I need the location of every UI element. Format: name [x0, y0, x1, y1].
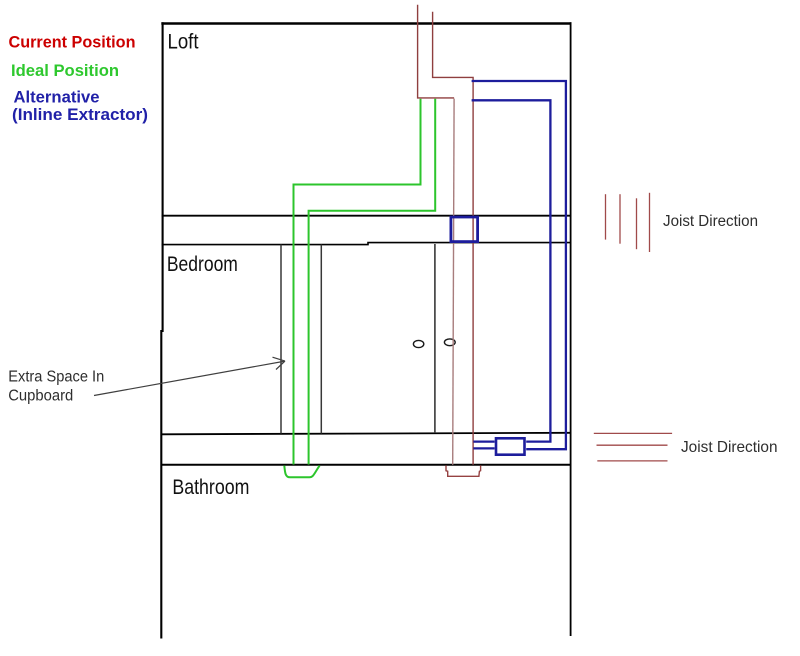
svg-text:Bathroom: Bathroom	[172, 476, 249, 499]
svg-text:Extra Space In: Extra Space In	[8, 368, 104, 385]
svg-text:Joist Direction: Joist Direction	[663, 213, 758, 230]
svg-text:Loft: Loft	[168, 31, 199, 54]
svg-text:(Inline Extractor): (Inline Extractor)	[12, 106, 148, 124]
svg-text:Current Position: Current Position	[9, 34, 136, 52]
svg-text:Ideal Position: Ideal Position	[11, 62, 119, 80]
svg-text:Joist Direction: Joist Direction	[681, 439, 778, 456]
svg-text:Cupboard: Cupboard	[8, 387, 73, 404]
svg-text:Bedroom: Bedroom	[167, 253, 238, 276]
svg-text:Alternative: Alternative	[14, 89, 100, 107]
